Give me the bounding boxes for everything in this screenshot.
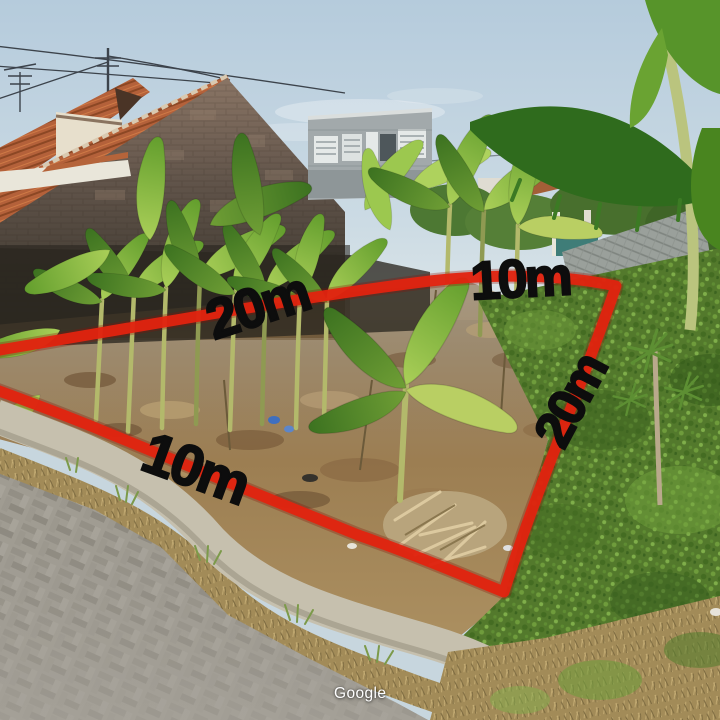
measurement-label-back-width: 10m (469, 249, 571, 308)
scene-svg (0, 0, 720, 720)
street-photo-of-land-plot: 20m 10m 20m 10m Google (0, 0, 720, 720)
google-watermark: Google (334, 685, 386, 703)
